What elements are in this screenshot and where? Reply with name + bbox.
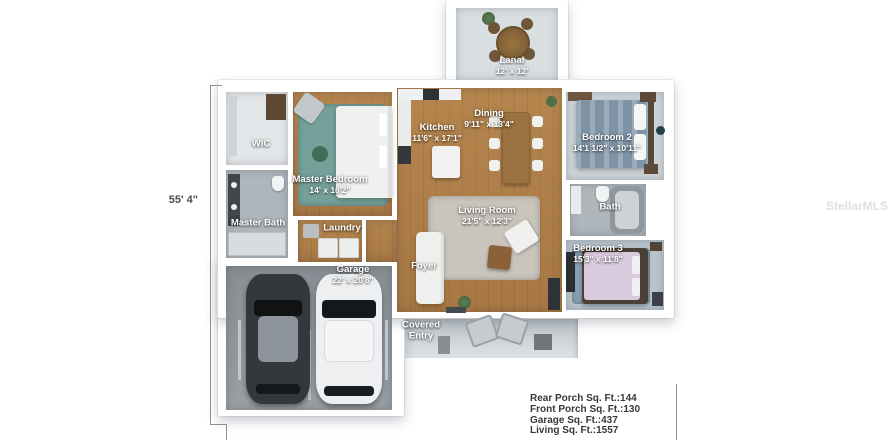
front-door-icon [446, 307, 466, 313]
coffee-table-icon [487, 245, 512, 270]
room-name: Dining [474, 108, 504, 119]
car-windshield-icon [254, 300, 302, 316]
white-car-icon [316, 274, 382, 404]
toilet-icon [596, 186, 609, 202]
shower-icon [228, 232, 286, 256]
room-name: Living Room [458, 205, 516, 216]
dining-chair-icon [532, 116, 543, 127]
dimension-line-right [676, 384, 677, 440]
room-name: Master Bath [231, 218, 285, 229]
room-name: Garage [337, 264, 370, 275]
room-name: Foyer [411, 261, 437, 272]
room-name: Entry [402, 331, 440, 342]
dimension-tick [210, 85, 222, 86]
nightstand-icon [640, 92, 656, 102]
dimension-line-vertical [210, 85, 211, 424]
room-label-wic: WIC [252, 140, 270, 151]
wall-mirror-icon [656, 126, 665, 135]
room-label-foyer: Foyer [411, 262, 437, 273]
fridge-icon [398, 146, 411, 164]
vanity-icon [571, 186, 581, 214]
room-label-laundry: Laundry [323, 224, 360, 235]
room-label-master-bedroom: Master Bedroom 14' x 16'2" [293, 175, 368, 195]
car-roof-icon [324, 320, 374, 362]
room-name: Bath [599, 202, 620, 213]
nightstand-icon [650, 242, 662, 251]
room-dims: 11'6" x 17'1" [412, 134, 461, 144]
bench-icon [652, 292, 663, 306]
car-rear-window-icon [324, 386, 374, 396]
dining-chair-icon [489, 160, 500, 171]
room-label-master-bath: Master Bath [231, 219, 285, 230]
room-name: Master Bedroom [293, 174, 368, 185]
room-dims: 21'5" x 12'3" [458, 217, 516, 227]
room-dims: 15'3" x 11'8" [573, 255, 623, 265]
range-icon [423, 89, 439, 100]
pillow-icon [634, 104, 646, 130]
closet-shelf-icon [266, 94, 286, 120]
room-label-bedroom2: Bedroom 2 14'1 1/2" x 10'11" [573, 133, 641, 153]
car-windshield-icon [322, 300, 376, 318]
car-roof-icon [258, 316, 298, 362]
room-name: Covered [402, 319, 440, 330]
hall-floor [366, 220, 397, 262]
dimension-line-vertical [226, 424, 227, 440]
room-name: Bedroom 2 [582, 132, 632, 143]
cabinet-icon [398, 100, 411, 146]
left-height-dimension: 55' 4" [140, 194, 198, 206]
stat-line: Living Sq. Ft.:1557 [530, 426, 640, 437]
room-label-kitchen: Kitchen 11'6" x 17'1" [412, 123, 461, 143]
porch-post-icon [534, 334, 552, 350]
watermark: StellarMLS [826, 199, 888, 213]
pillow-icon [632, 278, 640, 296]
room-name: Bedroom 3 [573, 243, 623, 254]
room-name: Laundry [323, 223, 360, 234]
room-dims: 22' x 20'8" [332, 276, 373, 286]
nightstand-icon [644, 164, 658, 174]
room-name: WIC [252, 139, 270, 150]
ottoman-icon [312, 146, 328, 162]
sink-icon [231, 204, 237, 210]
room-dims: 9'11" x 13'4" [464, 120, 513, 130]
room-label-living-room: Living Room 21'5" x 12'3" [458, 206, 516, 226]
headboard-icon [648, 100, 654, 168]
square-footage-stats: Rear Porch Sq. Ft.:144 Front Porch Sq. F… [530, 394, 640, 437]
hvac-unit-icon [303, 224, 319, 238]
lift-post-icon [238, 320, 241, 380]
dryer-icon [339, 238, 359, 258]
room-name: Kitchen [420, 122, 455, 133]
room-dims: 14' x 16'2" [293, 186, 368, 196]
washer-icon [318, 238, 338, 258]
pillow-icon [378, 112, 388, 138]
dark-car-icon [246, 274, 310, 404]
lift-post-icon [385, 320, 388, 380]
toilet-icon [272, 176, 284, 191]
dimension-elbow [210, 424, 226, 425]
room-name: Lanai [500, 55, 525, 66]
stat-line: Front Porch Sq. Ft.:130 [530, 405, 640, 416]
plant-icon [546, 96, 557, 107]
room-label-garage: Garage 22' x 20'8" [332, 265, 373, 285]
room-label-covered-entry: Covered Entry [402, 320, 440, 341]
closet-rod-icon [229, 96, 237, 156]
room-label-lanai: Lanai 12' x 12' [496, 56, 528, 76]
car-rear-window-icon [256, 384, 300, 394]
room-dims: 12' x 12' [496, 67, 528, 77]
dining-chair-icon [532, 160, 543, 171]
dining-chair-icon [532, 138, 543, 149]
room-label-dining: Dining 9'11" x 13'4" [464, 109, 513, 129]
sink-icon [231, 182, 237, 188]
dining-chair-icon [489, 138, 500, 149]
room-label-bedroom3: Bedroom 3 15'3" x 11'8" [573, 244, 623, 264]
floor-plan-image: Lanai 12' x 12' Kitchen 11'6" x 17'1" Di… [0, 0, 890, 440]
pillow-icon [378, 144, 388, 170]
room-label-bath: Bath [599, 203, 620, 214]
tv-console-icon [548, 278, 560, 310]
pillow-icon [632, 256, 640, 274]
headboard-icon [388, 106, 392, 198]
kitchen-island-icon [432, 146, 460, 178]
room-dims: 14'1 1/2" x 10'11" [573, 144, 641, 154]
